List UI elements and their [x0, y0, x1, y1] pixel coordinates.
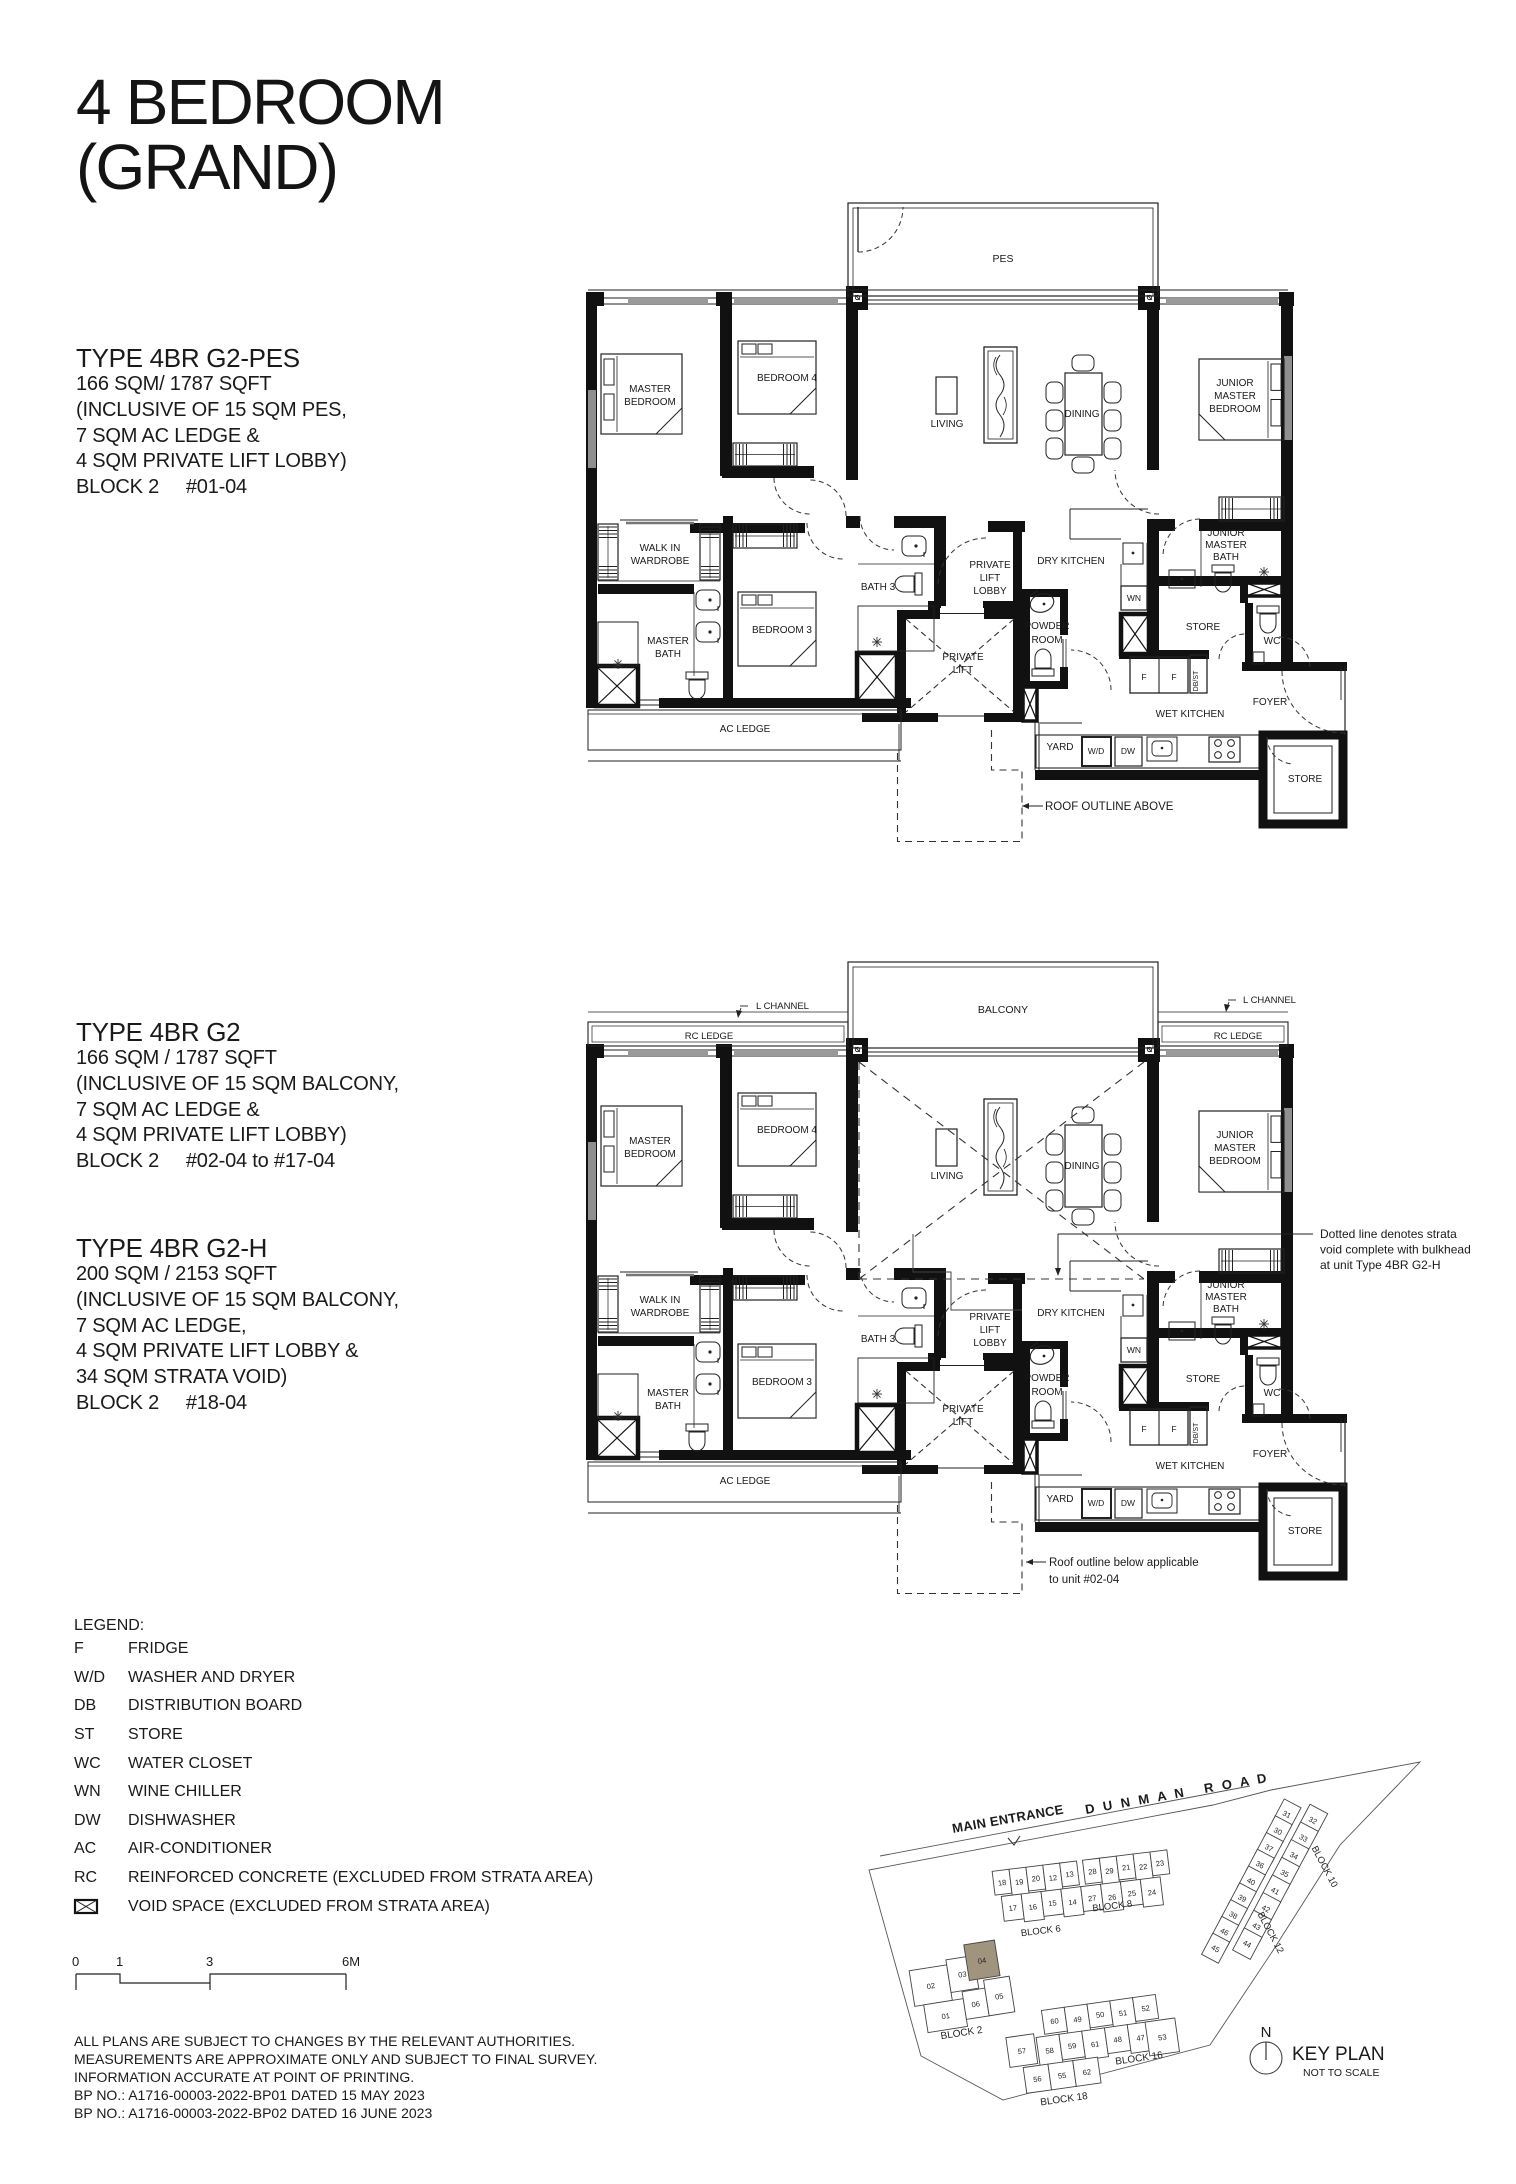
svg-text:06: 06	[971, 1999, 981, 2009]
svg-text:RC LEDGE: RC LEDGE	[1214, 1031, 1263, 1042]
svg-text:1: 1	[116, 1954, 123, 1969]
svg-text:04: 04	[977, 1956, 987, 1966]
svg-text:13: 13	[1065, 1869, 1074, 1879]
svg-text:56: 56	[1033, 2074, 1043, 2084]
svg-text:27: 27	[1087, 1893, 1096, 1903]
svg-text:15: 15	[1048, 1898, 1057, 1908]
svg-text:RC LEDGE: RC LEDGE	[685, 1031, 734, 1042]
svg-text:20: 20	[1031, 1874, 1040, 1884]
svg-text:53: 53	[1158, 2032, 1168, 2042]
svg-text:02: 02	[926, 1981, 936, 1991]
svg-text:57: 57	[1017, 2046, 1027, 2056]
svg-text:Dotted line denotes strata: Dotted line denotes strata	[1320, 1227, 1457, 1241]
svg-text:25: 25	[1127, 1889, 1136, 1899]
svg-text:N: N	[1261, 2024, 1272, 2041]
svg-text:59: 59	[1067, 2041, 1077, 2051]
svg-text:05: 05	[994, 1991, 1004, 2001]
svg-text:16: 16	[1028, 1902, 1037, 1912]
svg-text:51: 51	[1118, 2008, 1128, 2018]
svg-text:D U N M A N R O A D: D U N M A N R O A D	[1084, 1770, 1270, 1817]
svg-text:58: 58	[1045, 2046, 1055, 2056]
svg-text:01: 01	[941, 2011, 951, 2021]
svg-text:6M: 6M	[342, 1954, 360, 1969]
svg-text:29: 29	[1105, 1866, 1114, 1876]
svg-text:22: 22	[1139, 1862, 1148, 1872]
svg-text:60: 60	[1050, 2016, 1060, 2026]
svg-text:17: 17	[1008, 1903, 1017, 1913]
svg-text:03: 03	[958, 1969, 968, 1979]
svg-text:L CHANNEL: L CHANNEL	[756, 1001, 809, 1012]
svg-text:BALCONY: BALCONY	[978, 1004, 1028, 1016]
svg-text:50: 50	[1095, 2010, 1105, 2020]
svg-text:18: 18	[997, 1878, 1006, 1888]
svg-text:ROOF OUTLINE ABOVE: ROOF OUTLINE ABOVE	[1045, 801, 1174, 813]
svg-text:47: 47	[1136, 2033, 1146, 2043]
svg-text:12: 12	[1048, 1873, 1057, 1883]
svg-text:24: 24	[1147, 1888, 1156, 1898]
svg-text:28: 28	[1088, 1867, 1097, 1877]
svg-text:19: 19	[1014, 1877, 1023, 1887]
svg-text:void complete with bulkhead: void complete with bulkhead	[1320, 1243, 1471, 1257]
svg-text:0: 0	[72, 1954, 79, 1969]
svg-text:BLOCK 6: BLOCK 6	[1020, 1923, 1061, 1939]
svg-text:Roof outline below applicable: Roof outline below applicable	[1049, 1557, 1199, 1569]
svg-text:55: 55	[1057, 2071, 1067, 2081]
svg-text:BLOCK 10: BLOCK 10	[1309, 1844, 1340, 1889]
svg-text:at unit Type 4BR G2-H: at unit Type 4BR G2-H	[1320, 1258, 1441, 1272]
svg-text:49: 49	[1073, 2014, 1083, 2024]
svg-text:BLOCK 18: BLOCK 18	[1040, 2091, 1089, 2109]
svg-text:14: 14	[1068, 1897, 1077, 1907]
svg-text:PES: PES	[992, 253, 1013, 265]
svg-text:MAIN ENTRANCE: MAIN ENTRANCE	[951, 1802, 1065, 1836]
svg-text:61: 61	[1090, 2039, 1100, 2049]
svg-text:48: 48	[1113, 2035, 1123, 2045]
svg-text:52: 52	[1141, 2003, 1151, 2013]
svg-text:L CHANNEL: L CHANNEL	[1243, 995, 1296, 1006]
svg-text:62: 62	[1082, 2067, 1092, 2077]
svg-text:NOT TO SCALE: NOT TO SCALE	[1303, 2067, 1379, 2079]
svg-text:3: 3	[206, 1954, 213, 1969]
svg-text:BLOCK 16: BLOCK 16	[1115, 2050, 1164, 2068]
svg-text:21: 21	[1121, 1863, 1130, 1873]
svg-text:23: 23	[1155, 1858, 1164, 1868]
svg-text:KEY PLAN: KEY PLAN	[1292, 2044, 1385, 2065]
svg-text:to unit #02-04: to unit #02-04	[1049, 1574, 1120, 1586]
